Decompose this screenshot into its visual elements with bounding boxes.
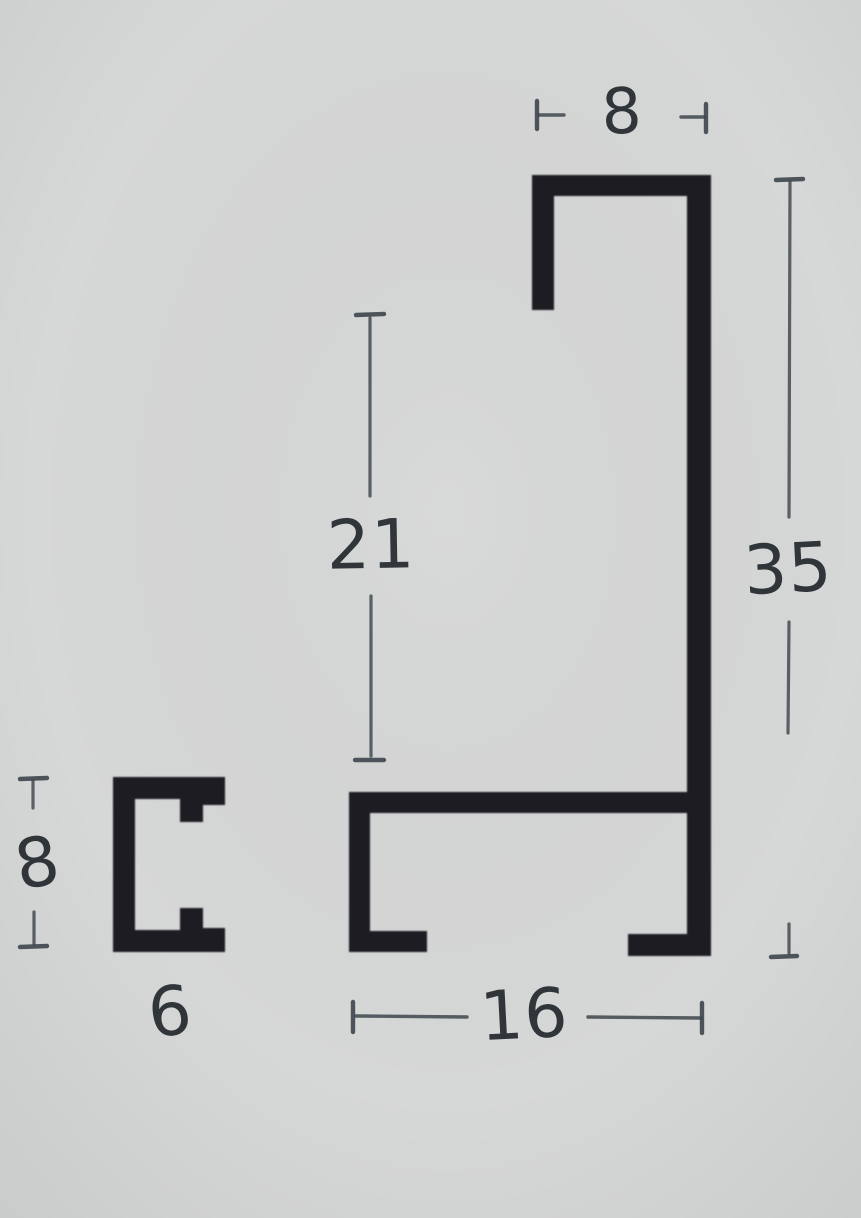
- dim-label-upper-height: 21: [326, 505, 416, 586]
- dim-total-height-tick-top: [776, 179, 803, 180]
- dim-label-bottom-width: 16: [478, 974, 571, 1058]
- dim-small-height-tick-bottom: [20, 946, 47, 947]
- dim-total-height-tick-bottom: [771, 956, 797, 957]
- dim-label-total-height: 35: [742, 528, 835, 612]
- dim-label-top-width: 8: [600, 74, 644, 148]
- dim-small-height-tick-top: [20, 778, 47, 779]
- vignette-overlay: [0, 0, 861, 1218]
- dim-total-height-stem-mid: [788, 622, 789, 733]
- dim-upper-height-tick-top: [356, 314, 384, 315]
- dim-label-small-width: 6: [144, 971, 196, 1054]
- dim-bottom-width-lead-left: [356, 1016, 467, 1017]
- dim-bottom-width-lead-right: [588, 1017, 701, 1018]
- dim-total-height-stem-top: [789, 182, 790, 517]
- dim-small-width: 6: [144, 971, 196, 1054]
- drawing-canvas: 8 21 35 16 8 6: [0, 0, 861, 1218]
